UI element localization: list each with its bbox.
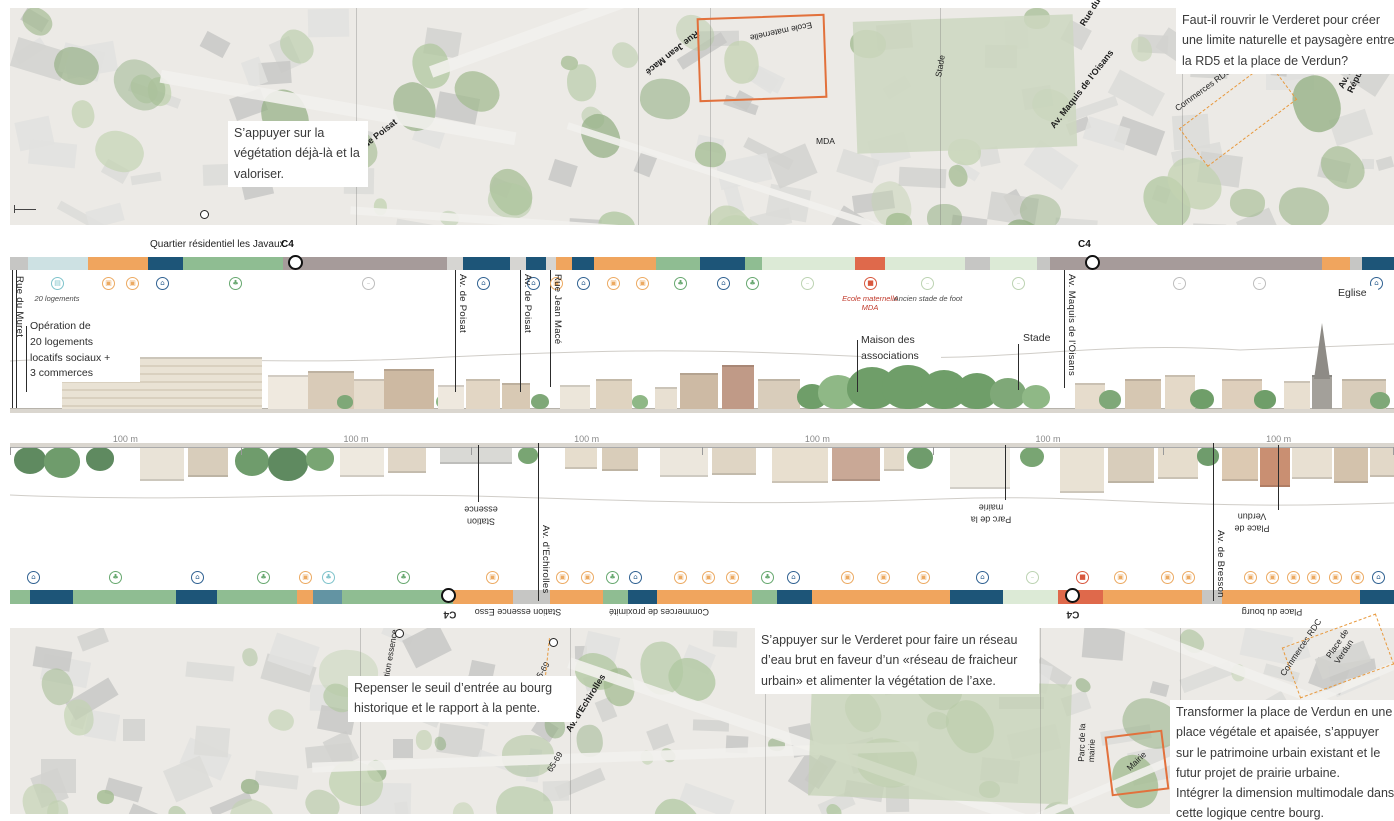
building-facade — [596, 379, 632, 409]
street-elevation-north — [10, 306, 1394, 413]
program-segment — [88, 257, 148, 270]
scale-tick — [471, 447, 472, 455]
program-segment — [812, 590, 950, 604]
program-icon: ▣ — [702, 571, 715, 584]
tree — [1099, 390, 1121, 409]
street-line — [1213, 443, 1214, 601]
flipped-label: Parc de la mairie — [960, 501, 1022, 525]
flipped-label: Station essence — [452, 503, 510, 527]
program-segment — [1222, 590, 1360, 604]
tree — [337, 395, 353, 409]
c4-marker — [441, 588, 456, 603]
program-segment — [777, 590, 812, 604]
c4-marker — [1085, 255, 1100, 270]
building-facade — [1284, 381, 1310, 409]
building-facade — [1125, 379, 1161, 409]
c4-marker — [1065, 588, 1080, 603]
map-building — [128, 803, 172, 814]
quartier-label: Quartier résidentiel les Javaux — [150, 239, 285, 250]
program-icon: ▣ — [1266, 571, 1279, 584]
program-segment — [752, 590, 777, 604]
program-segment — [510, 257, 526, 270]
flipped-label: C4 — [1063, 607, 1083, 621]
street-label: Av. de Poisat — [522, 274, 533, 333]
scale-tick — [241, 447, 242, 455]
elevation-callout: Maison des associations — [861, 333, 941, 365]
map-vegetation — [90, 125, 150, 179]
map-building — [254, 770, 298, 789]
map-building — [1108, 70, 1165, 116]
program-segment — [526, 257, 546, 270]
street-line — [1018, 344, 1019, 390]
program-segment — [283, 257, 447, 270]
map-vegetation — [1073, 675, 1093, 694]
program-icon: – — [1026, 571, 1039, 584]
tree — [1022, 385, 1050, 409]
map-building — [713, 630, 738, 647]
flipped-label: Place de Verdun — [1222, 510, 1282, 534]
map-note: Repenser le seuil d’entrée au bourg hist… — [348, 676, 576, 722]
street-line — [857, 340, 858, 392]
program-segment — [30, 590, 73, 604]
program-icon: ▣ — [636, 277, 649, 290]
sports-field — [853, 14, 1077, 154]
flipped-label: Station essence Esso — [462, 606, 574, 618]
building-facade — [655, 387, 677, 409]
program-icon: ♣ — [761, 571, 774, 584]
program-segment — [176, 590, 217, 604]
program-segment — [1362, 257, 1394, 270]
program-segment — [447, 257, 463, 270]
building-facade — [438, 385, 464, 409]
program-segment — [550, 590, 603, 604]
program-icon: ▣ — [556, 571, 569, 584]
map-note: S’appuyer sur la végétation déjà-là et l… — [228, 121, 368, 187]
c4-label: C4 — [1078, 239, 1091, 250]
map-building — [77, 628, 109, 652]
program-icon: ♣ — [606, 571, 619, 584]
program-segment — [183, 257, 283, 270]
program-icon: – — [1012, 277, 1025, 290]
scale-label: 100 m — [343, 434, 368, 444]
street-line — [520, 270, 521, 392]
map-vegetation — [165, 803, 189, 814]
program-icon: ▣ — [486, 571, 499, 584]
panel-join-line — [356, 8, 357, 225]
program-segment — [10, 590, 30, 604]
program-segment — [1350, 257, 1362, 270]
street-elevation-south-flipped — [10, 443, 1394, 525]
map-vegetation — [565, 63, 597, 102]
building-facade — [560, 385, 590, 409]
map-building — [1082, 628, 1125, 661]
program-segment — [1322, 257, 1350, 270]
elevation-callout: Opération de 20 logements locatifs socia… — [30, 319, 140, 382]
tree — [990, 378, 1026, 409]
program-icon: ▣ — [1287, 571, 1300, 584]
program-icon: ▣ — [581, 571, 594, 584]
scale-label: 100 m — [1266, 434, 1291, 444]
program-icon: ■ — [1076, 571, 1089, 584]
building-facade — [1108, 447, 1154, 483]
map-building — [123, 719, 145, 741]
program-segment — [700, 257, 745, 270]
street-label: Av. de Poisat — [457, 274, 468, 333]
street-label: Av. d'Echirolles — [540, 525, 551, 594]
program-icon: ⌂ — [976, 571, 989, 584]
building-facade — [680, 373, 718, 409]
panel-join-line — [638, 8, 639, 225]
map-note: Faut-il rouvrir le Verderet pour créer u… — [1176, 8, 1394, 74]
program-icon: ■ — [864, 277, 877, 290]
building-facade — [1060, 447, 1104, 493]
street-label: Rue du Muret — [14, 276, 25, 337]
scale-bar: 100 m100 m100 m100 m100 m100 m — [10, 436, 1394, 452]
scale-label: 100 m — [574, 434, 599, 444]
road-label: MDA — [816, 136, 835, 146]
map-building — [308, 9, 350, 38]
panel-join-line — [1040, 628, 1041, 814]
building-facade — [140, 447, 184, 481]
map-building — [548, 159, 577, 187]
program-icon: ▣ — [126, 277, 139, 290]
icon-caption: 20 logements — [34, 294, 79, 303]
map-building — [28, 140, 77, 169]
scale-tick — [933, 447, 934, 455]
flipped-label: C4 — [440, 607, 460, 621]
map-building — [1150, 681, 1170, 697]
program-segment — [965, 257, 990, 270]
program-segment — [28, 257, 88, 270]
program-icon: ▣ — [1244, 571, 1257, 584]
scale-label: 100 m — [1035, 434, 1060, 444]
building-facade — [1222, 447, 1258, 481]
program-segment — [463, 257, 510, 270]
highlight-outline — [1105, 730, 1170, 797]
program-segment — [1003, 590, 1058, 604]
program-icon: ⌂ — [787, 571, 800, 584]
program-segment — [148, 257, 183, 270]
program-segment — [572, 257, 594, 270]
map-note: Transformer la place de Verdun en une pl… — [1170, 700, 1394, 821]
map-vegetation — [1314, 138, 1372, 196]
building-facade — [384, 369, 434, 409]
edge-tick — [14, 209, 36, 210]
program-icon: ⌂ — [27, 571, 40, 584]
panel-join-line — [940, 8, 941, 225]
tree — [1190, 389, 1214, 409]
building-facade — [950, 447, 1010, 489]
program-icon: ▣ — [1307, 571, 1320, 584]
program-segment — [603, 590, 628, 604]
building-facade — [268, 375, 308, 409]
building-facade — [772, 447, 828, 483]
program-icon: – — [921, 277, 934, 290]
building-facade — [466, 379, 500, 409]
program-segment — [313, 590, 342, 604]
tree — [268, 447, 308, 481]
scale-tick — [702, 447, 703, 455]
map-note: S’appuyer sur le Verderet pour faire un … — [755, 628, 1039, 694]
scale-label: 100 m — [805, 434, 830, 444]
elevation-callout: Stade — [1023, 331, 1063, 347]
program-icon: – — [362, 277, 375, 290]
street-line — [538, 443, 539, 601]
program-icon: ⌂ — [717, 277, 730, 290]
program-icon: ♣ — [229, 277, 242, 290]
program-icon: ♣ — [109, 571, 122, 584]
map-vegetation — [1275, 183, 1332, 225]
program-segment — [950, 590, 1003, 604]
map-vegetation — [595, 208, 638, 225]
building-facade — [758, 379, 800, 409]
scale-tick — [1163, 447, 1164, 455]
street-line — [1278, 445, 1279, 510]
tree — [531, 394, 549, 409]
program-icon: ♣ — [674, 277, 687, 290]
map-building — [85, 203, 124, 225]
flipped-label: Place du bourg — [1226, 606, 1318, 618]
building-facade — [722, 365, 754, 409]
street-line — [478, 445, 479, 502]
park-area — [808, 675, 1072, 804]
program-segment — [297, 590, 313, 604]
program-segment — [628, 590, 657, 604]
program-icon: – — [801, 277, 814, 290]
program-icon: ⌂ — [156, 277, 169, 290]
highlight-outline — [697, 14, 828, 102]
map-vegetation — [1229, 188, 1266, 218]
program-segment — [855, 257, 885, 270]
c4-label: C4 — [281, 239, 294, 250]
map-vegetation — [69, 98, 97, 130]
street-line — [12, 270, 13, 408]
program-icon: ▣ — [841, 571, 854, 584]
program-icon: ⌂ — [191, 571, 204, 584]
program-bar-bottom — [10, 590, 1394, 604]
building-facade — [354, 379, 384, 409]
program-icon: ♣ — [257, 571, 270, 584]
map-building — [1054, 218, 1098, 225]
urban-axis-study-board: Quartier résidentiel les Javaux 100 m100… — [0, 0, 1394, 821]
program-segment — [657, 590, 752, 604]
program-icon: – — [1253, 277, 1266, 290]
program-icon: ⌂ — [477, 277, 490, 290]
church-spire — [1314, 323, 1330, 379]
map-vegetation — [927, 204, 963, 225]
program-icon: ▣ — [1329, 571, 1342, 584]
tree — [632, 395, 648, 409]
program-icon: ▣ — [1161, 571, 1174, 584]
icon-caption: Ancien stade de foot — [894, 294, 962, 303]
program-icon: ♣ — [746, 277, 759, 290]
map-vegetation — [241, 647, 260, 668]
c4-marker — [288, 255, 303, 270]
street-line — [1005, 445, 1006, 500]
map-building — [393, 739, 413, 758]
program-segment — [1037, 257, 1050, 270]
program-icon: ♣ — [322, 571, 335, 584]
program-segment — [990, 257, 1037, 270]
program-icon: ▣ — [726, 571, 739, 584]
program-segment — [1360, 590, 1394, 604]
map-vegetation — [265, 706, 296, 734]
program-icon: ♣ — [397, 571, 410, 584]
map-vegetation — [637, 76, 692, 123]
street-line — [455, 270, 456, 392]
map-vegetation — [416, 730, 432, 750]
program-icon: ▣ — [917, 571, 930, 584]
street-label: Av. de Bresson — [1215, 530, 1226, 598]
program-segment — [73, 590, 176, 604]
tree — [1370, 392, 1390, 409]
program-icon: ⌂ — [1372, 571, 1385, 584]
scale-tick — [10, 447, 11, 455]
program-icon: ▣ — [674, 571, 687, 584]
map-building — [1193, 223, 1226, 225]
map-building — [199, 31, 230, 58]
program-segment — [10, 257, 28, 270]
building-facade — [1334, 447, 1368, 483]
building-facade — [832, 447, 880, 481]
program-icon: ▣ — [1114, 571, 1127, 584]
map-building — [899, 167, 947, 189]
program-segment — [556, 257, 572, 270]
circle-marker — [549, 638, 558, 647]
program-icon: ▣ — [299, 571, 312, 584]
program-icon: ▣ — [1351, 571, 1364, 584]
circle-marker — [395, 629, 404, 638]
street-label: Rue Jean Macé — [552, 274, 563, 344]
program-segment — [745, 257, 762, 270]
map-building — [194, 726, 230, 758]
street-line — [26, 326, 27, 392]
program-segment — [594, 257, 656, 270]
flipped-label: Commerces de proximité — [600, 606, 718, 618]
map-vegetation — [451, 801, 476, 814]
road-label: Parc de la mairie — [1076, 723, 1097, 762]
program-icon: – — [1173, 277, 1186, 290]
program-segment — [217, 590, 297, 604]
map-vegetation — [96, 789, 114, 804]
program-segment — [342, 590, 453, 604]
program-segment — [885, 257, 965, 270]
church-body — [1312, 375, 1332, 409]
icon-caption: Ecole maternelle MDA — [842, 294, 898, 312]
circle-marker — [200, 210, 209, 219]
street-label: Av. Maquis de l'Oisans — [1066, 274, 1077, 376]
program-bar-top — [10, 257, 1394, 270]
program-segment — [546, 257, 556, 270]
program-icon: ▣ — [607, 277, 620, 290]
program-icon: ▣ — [1182, 571, 1195, 584]
program-icon: ▤ — [51, 277, 64, 290]
program-icon: ⌂ — [629, 571, 642, 584]
street-line — [1064, 270, 1065, 388]
map-building — [131, 172, 162, 185]
map-building — [1376, 156, 1394, 171]
program-icon: ▣ — [102, 277, 115, 290]
map-building — [185, 662, 234, 682]
map-building — [646, 724, 674, 751]
program-icon: ⌂ — [577, 277, 590, 290]
scale-label: 100 m — [113, 434, 138, 444]
building-facade — [1260, 447, 1290, 487]
map-vegetation — [240, 778, 259, 794]
program-segment — [453, 590, 513, 604]
program-segment — [656, 257, 700, 270]
tree — [1254, 390, 1276, 409]
map-vegetation — [18, 8, 58, 41]
building-facade — [502, 383, 530, 409]
program-segment — [762, 257, 855, 270]
program-icon: ▣ — [877, 571, 890, 584]
elevation-callout: Eglise — [1338, 286, 1378, 302]
program-segment — [1103, 590, 1202, 604]
